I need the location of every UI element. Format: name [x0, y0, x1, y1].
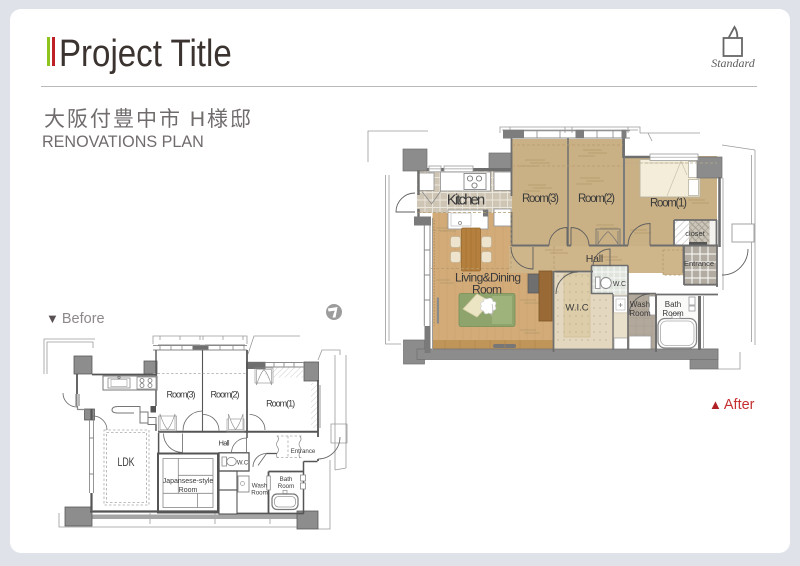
svg-text:Entrance: Entrance — [684, 259, 714, 268]
svg-text:Room: Room — [629, 309, 651, 318]
svg-text:Kitchen: Kitchen — [447, 192, 486, 209]
svg-text:Room: Room — [278, 483, 295, 490]
svg-text:W.I.C: W.I.C — [565, 303, 588, 314]
svg-text:Wash: Wash — [252, 483, 268, 490]
svg-text:Room: Room — [251, 490, 268, 497]
svg-text:Room(2): Room(2) — [578, 193, 615, 205]
svg-text:Room(2): Room(2) — [211, 390, 240, 400]
svg-text:Entrance: Entrance — [291, 448, 316, 455]
svg-text:Room(1): Room(1) — [266, 398, 295, 408]
svg-text:Hall: Hall — [586, 253, 604, 265]
svg-text:W.C: W.C — [613, 281, 626, 288]
svg-text:Room(3): Room(3) — [522, 193, 559, 205]
svg-text:Room: Room — [472, 283, 502, 297]
svg-text:Hall: Hall — [219, 438, 230, 447]
svg-text:Bath: Bath — [280, 476, 293, 483]
svg-text:LDK: LDK — [118, 457, 135, 469]
svg-text:Bath: Bath — [665, 300, 681, 309]
svg-text:Wash: Wash — [630, 300, 650, 309]
svg-text:Japansese-style: Japansese-style — [163, 478, 214, 485]
svg-text:W.C: W.C — [237, 461, 249, 467]
svg-text:closet: closet — [685, 229, 706, 238]
svg-text:Room: Room — [179, 487, 198, 494]
svg-text:Room(3): Room(3) — [167, 390, 196, 400]
svg-text:Room: Room — [662, 309, 684, 318]
svg-text:Room(1): Room(1) — [650, 197, 687, 209]
